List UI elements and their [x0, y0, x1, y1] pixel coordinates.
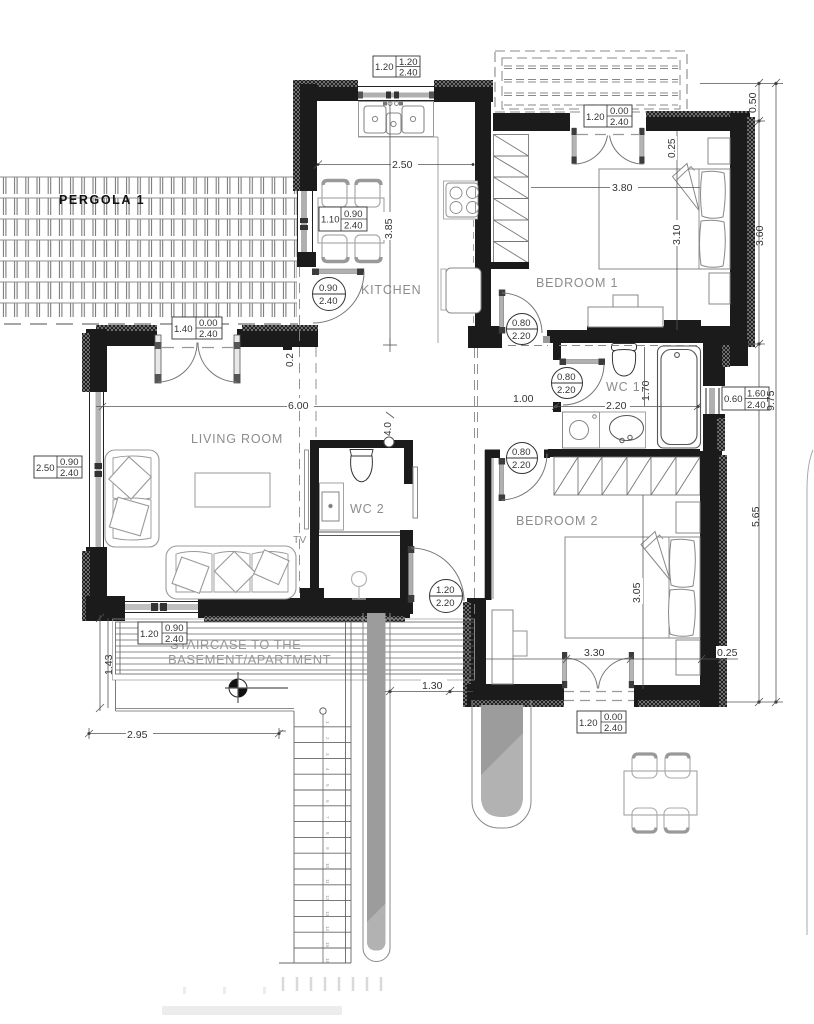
svg-text:WC 1: WC 1	[606, 380, 640, 394]
svg-text:1.60: 1.60	[747, 389, 766, 400]
svg-text:0.25: 0.25	[667, 138, 678, 158]
svg-text:2.40: 2.40	[399, 68, 418, 79]
svg-text:0.90: 0.90	[319, 283, 338, 294]
svg-text:1.20: 1.20	[579, 718, 598, 729]
svg-text:2.40: 2.40	[610, 117, 629, 128]
svg-text:3: 3	[325, 753, 330, 756]
svg-text:14: 14	[325, 926, 330, 932]
svg-text:0.60: 0.60	[724, 394, 743, 405]
svg-text:STAIRCASE TO THE: STAIRCASE TO THE	[170, 637, 301, 652]
svg-text:10: 10	[325, 863, 330, 869]
svg-text:15: 15	[325, 942, 330, 948]
svg-text:2.40: 2.40	[319, 296, 338, 307]
svg-text:1.43: 1.43	[103, 654, 115, 675]
svg-text:13: 13	[325, 911, 330, 917]
svg-text:11: 11	[325, 879, 330, 884]
svg-text:0.00: 0.00	[199, 318, 218, 329]
svg-text:2.40: 2.40	[165, 634, 184, 645]
svg-text:3.80: 3.80	[612, 182, 633, 194]
svg-text:2.50: 2.50	[392, 159, 413, 171]
svg-text:0.80: 0.80	[557, 372, 576, 383]
svg-text:BASEMENT/APARTMENT: BASEMENT/APARTMENT	[168, 652, 331, 667]
svg-text:1.00: 1.00	[513, 393, 534, 405]
svg-text:12: 12	[325, 895, 330, 901]
svg-text:3.10: 3.10	[671, 224, 683, 245]
svg-text:3.85: 3.85	[383, 218, 395, 239]
svg-text:0.50: 0.50	[747, 92, 759, 113]
svg-text:7: 7	[325, 816, 330, 819]
svg-text:8: 8	[325, 832, 330, 835]
svg-text:2.40: 2.40	[604, 723, 623, 734]
svg-text:1.20: 1.20	[399, 57, 418, 68]
svg-text:BEDROOM 2: BEDROOM 2	[516, 514, 598, 528]
svg-text:2.20: 2.20	[557, 385, 576, 396]
svg-text:4: 4	[325, 768, 330, 771]
svg-text:0.90: 0.90	[344, 209, 363, 220]
svg-text:0.00: 0.00	[604, 712, 623, 723]
svg-text:3.05: 3.05	[631, 582, 643, 603]
svg-text:0.90: 0.90	[60, 457, 79, 468]
svg-text:2.40: 2.40	[344, 221, 363, 232]
svg-text:2.95: 2.95	[127, 729, 148, 741]
svg-text:LIVING ROOM: LIVING ROOM	[191, 432, 283, 446]
svg-text:1.20: 1.20	[375, 62, 394, 73]
svg-text:2.40: 2.40	[747, 400, 766, 411]
svg-text:1.20: 1.20	[586, 112, 605, 123]
svg-text:16: 16	[325, 958, 330, 964]
svg-text:9.75: 9.75	[765, 390, 777, 411]
svg-text:0.90: 0.90	[165, 623, 184, 634]
svg-text:2.40: 2.40	[199, 329, 218, 340]
svg-text:2.40: 2.40	[60, 468, 79, 479]
svg-text:2.20: 2.20	[512, 331, 531, 342]
svg-text:BEDROOM 1: BEDROOM 1	[536, 276, 618, 290]
svg-text:1.20: 1.20	[140, 629, 159, 640]
svg-text:1: 1	[325, 721, 330, 724]
svg-text:4.0: 4.0	[383, 422, 394, 436]
svg-text:1.10: 1.10	[321, 215, 340, 226]
svg-text:0.25: 0.25	[717, 647, 738, 659]
svg-text:KITCHEN: KITCHEN	[361, 283, 421, 297]
svg-text:1.40: 1.40	[174, 324, 193, 335]
svg-text:PERGOLA 1: PERGOLA 1	[59, 193, 145, 207]
svg-text:6: 6	[325, 800, 330, 803]
svg-text:3.30: 3.30	[584, 647, 605, 659]
svg-text:9: 9	[325, 847, 330, 850]
svg-text:6.00: 6.00	[288, 400, 309, 412]
svg-text:2.20: 2.20	[512, 460, 531, 471]
svg-text:5: 5	[325, 784, 330, 787]
svg-text:0.2: 0.2	[285, 353, 296, 367]
svg-text:0.80: 0.80	[512, 447, 531, 458]
svg-text:1.30: 1.30	[422, 680, 443, 692]
svg-text:2.50: 2.50	[36, 463, 55, 474]
svg-text:2: 2	[325, 737, 330, 740]
svg-text:WC 2: WC 2	[350, 502, 384, 516]
svg-text:0.00: 0.00	[610, 106, 629, 117]
svg-text:0.80: 0.80	[512, 318, 531, 329]
svg-text:1.70: 1.70	[640, 380, 652, 401]
svg-text:3.60: 3.60	[754, 225, 766, 246]
svg-text:5.65: 5.65	[750, 506, 762, 527]
svg-text:2.20: 2.20	[436, 598, 455, 609]
svg-text:1.20: 1.20	[436, 585, 455, 596]
svg-text:2.20: 2.20	[606, 400, 627, 412]
